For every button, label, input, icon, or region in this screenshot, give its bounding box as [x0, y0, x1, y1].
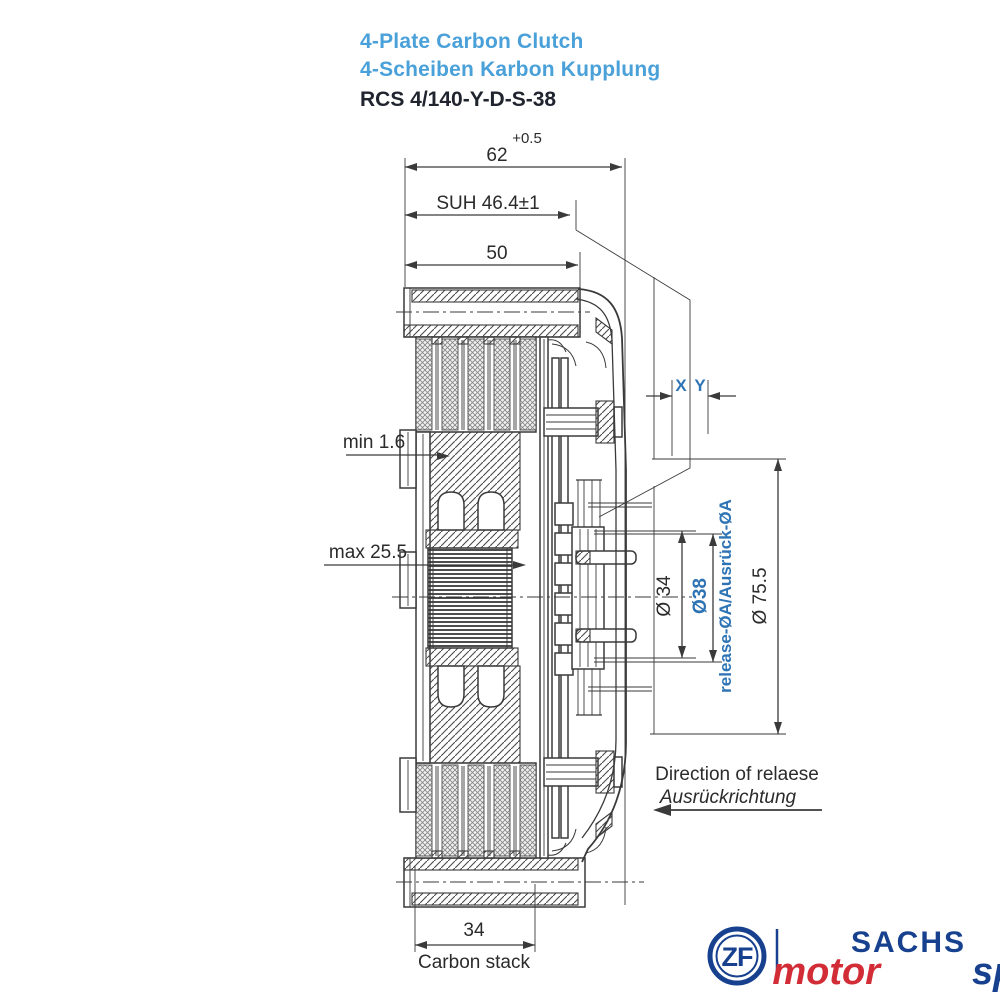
product-title-de: 4-Scheiben Karbon Kupplung — [360, 56, 660, 84]
max-travel-label: max 25.5 — [329, 542, 407, 563]
carbon-stack-value: 34 — [463, 920, 485, 941]
release-direction-de: Ausrückrichtung — [659, 787, 797, 808]
dim-total-width-value: 62 — [486, 145, 507, 166]
dia75-label: Ø 75.5 — [750, 567, 771, 624]
x-label: X — [675, 376, 687, 395]
clutch-cross-section-drawing: 62 +0.5 SUH 46.4±1 50 min 1.6 max 2 — [0, 0, 1000, 1000]
release-dia-label: release-ØA/Ausrück-ØA — [716, 499, 735, 693]
dimension-cover-width-50: 50 — [405, 243, 580, 289]
release-direction-note: Direction of relaese Ausrückrichtung — [653, 764, 822, 816]
dim-cover-width-value: 50 — [486, 243, 507, 264]
carbon-stack-label: Carbon stack — [418, 952, 530, 973]
technical-drawing-page: 62 +0.5 SUH 46.4±1 50 min 1.6 max 2 — [0, 0, 1000, 1000]
motorsport-motor: motor — [772, 951, 882, 993]
splined-hub — [426, 530, 518, 666]
model-number: RCS 4/140-Y-D-S-38 — [360, 86, 660, 114]
title-block: 4-Plate Carbon Clutch 4-Scheiben Karbon … — [360, 28, 660, 114]
y-label: Y — [694, 376, 706, 395]
product-title-en: 4-Plate Carbon Clutch — [360, 28, 660, 56]
dim-suh-value: SUH 46.4±1 — [436, 193, 539, 214]
motorsport-sport: sport — [972, 951, 1000, 993]
dim-total-width-tolerance: +0.5 — [512, 130, 542, 147]
release-direction-en: Direction of relaese — [655, 764, 819, 785]
left-drive-lugs — [400, 430, 416, 812]
hub-plate-top — [430, 432, 520, 530]
cover-bolt-bottom — [544, 751, 622, 793]
dia34-label: Ø 34 — [654, 575, 675, 617]
carbon-stack-top — [416, 337, 536, 432]
cover-bolt-top — [544, 401, 622, 443]
flywheel-ring-top — [396, 288, 590, 337]
carbon-stack-bottom — [416, 763, 536, 858]
flywheel-ring-bottom — [396, 858, 644, 907]
hub-plate-bottom — [430, 666, 520, 763]
zf-logo-text: ZF — [722, 942, 753, 972]
dia38-label: Ø38 — [690, 578, 711, 614]
min-wear-label: min 1.6 — [343, 432, 405, 453]
zf-sachs-motorsport-logo: ZF SACHS motor sport — [710, 926, 1000, 993]
